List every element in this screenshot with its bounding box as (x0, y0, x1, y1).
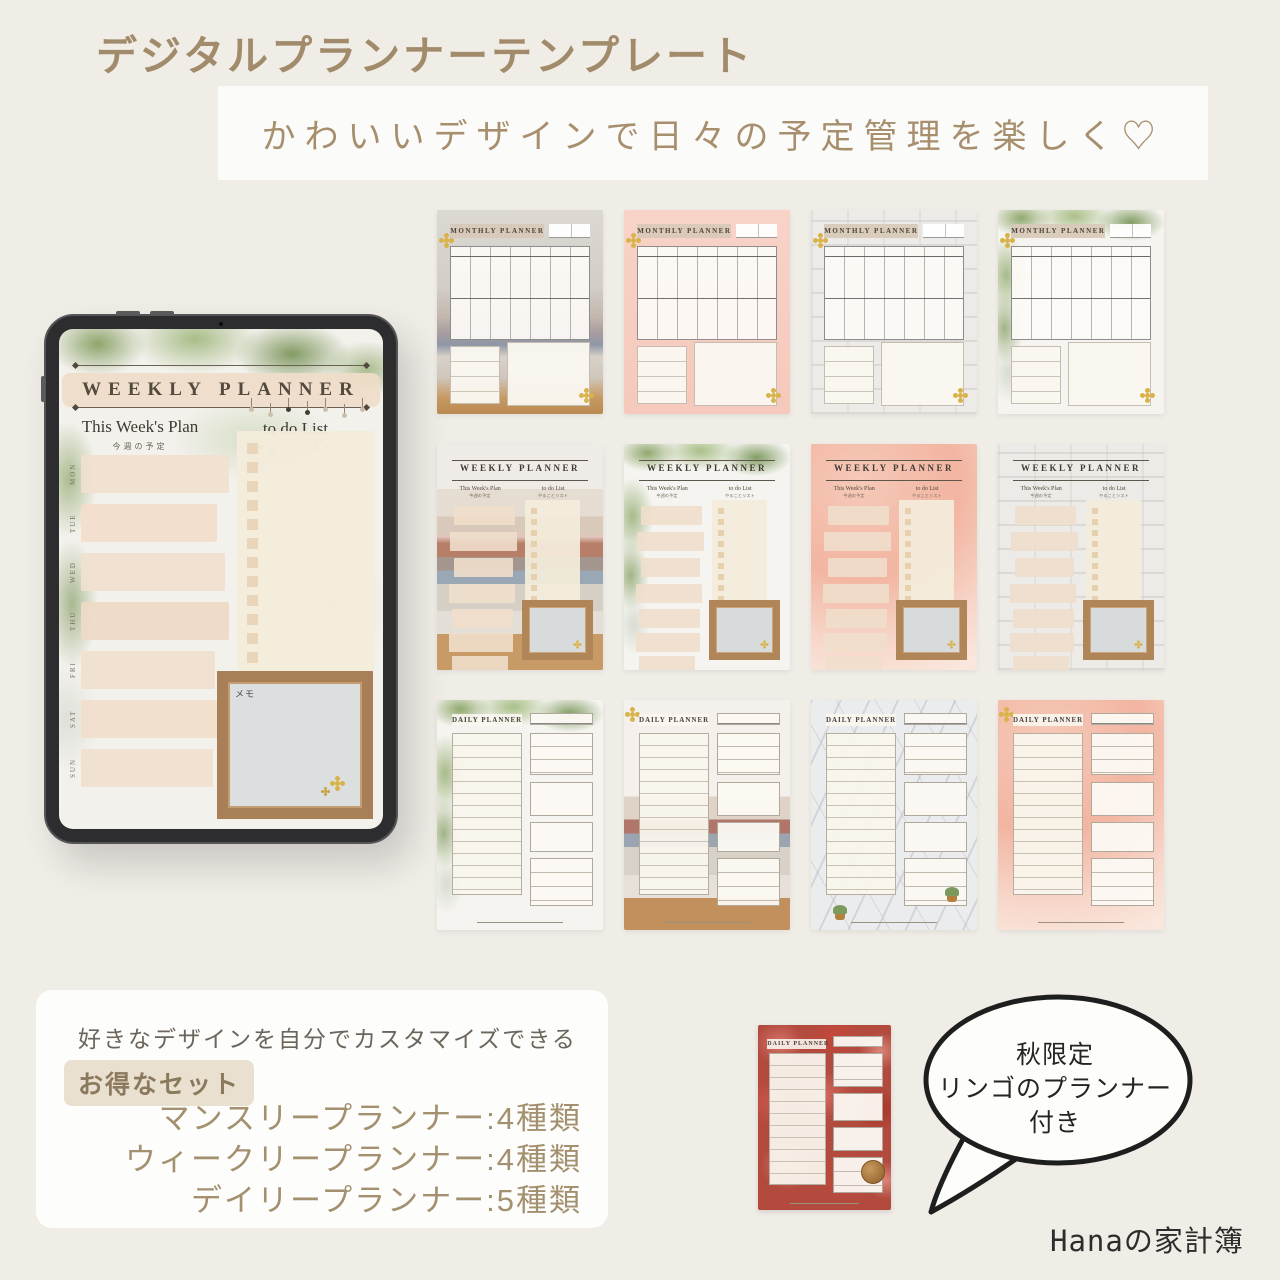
mini-title: DAILY PLANNER (452, 714, 522, 726)
day-entry-box (449, 584, 515, 603)
day-entry-box (636, 584, 702, 603)
day-entry-box (449, 633, 514, 652)
day-row: TUE (69, 504, 229, 542)
schedule-panel (452, 733, 522, 895)
day-entry-box (823, 633, 888, 652)
notes-box (824, 346, 874, 404)
todo-box (717, 733, 780, 775)
mini-todo-heading: to do Listやることリスト (897, 486, 957, 499)
memo-box (833, 1127, 884, 1151)
day-entry-box (826, 609, 887, 628)
tablet-power-button (41, 376, 45, 402)
set-item-daily: デイリープランナー:5種類 (125, 1180, 582, 1221)
notes-box (1011, 346, 1061, 404)
planner-thumbnail-weekly-2: WEEKLY PLANNER This Week's Plan今週の予定 to … (624, 444, 790, 670)
notes-box (530, 858, 593, 906)
promo-banner: かわいいデザインで日々の予定管理を楽しく♡ (218, 86, 1208, 180)
planner-thumbnail-daily-4: DAILY PLANNER (998, 700, 1164, 930)
tablet-volume-button (150, 311, 174, 315)
mini-title: DAILY PLANNER (639, 714, 709, 726)
flower-icon (444, 238, 449, 243)
mini-title: WEEKLY PLANNER (624, 463, 790, 473)
todo-box (1091, 733, 1154, 775)
mini-todo-heading: to do Listやることリスト (1084, 486, 1144, 499)
flower-icon (1005, 238, 1010, 243)
day-entry-box (826, 656, 882, 670)
notes-box (1068, 342, 1151, 406)
week-day-rows: MON TUE WED THU FRI SAT SUN (69, 455, 229, 787)
brand-credit: Hanaの家計簿 (1050, 1218, 1244, 1260)
memo-box (530, 822, 593, 852)
apple-planner-thumbnail: DAILY PLANNER (758, 1025, 891, 1210)
flower-icon (1004, 712, 1009, 717)
planner-thumbnail-weekly-1: WEEKLY PLANNER This Week's Plan今週の予定 to … (437, 444, 603, 670)
planner-thumbnail-daily-3: DAILY PLANNER (811, 700, 977, 930)
bubble-line-2: リンゴのプランナー付き (930, 1072, 1180, 1140)
day-entry-box (1013, 656, 1069, 670)
day-entry-box (641, 506, 702, 525)
flower-icon (631, 238, 636, 243)
day-entry-box (81, 455, 229, 493)
set-item-monthly: マンスリープランナー:4種類 (125, 1098, 582, 1139)
mini-week-plan-heading: This Week's Plan今週の予定 (819, 486, 889, 499)
mini-week-plan-heading: This Week's Plan今週の予定 (632, 486, 702, 499)
day-row: THU (69, 602, 229, 640)
mini-week-plan-heading: This Week's Plan今週の予定 (1006, 486, 1076, 499)
mini-title: WEEKLY PLANNER (811, 463, 977, 473)
mini-title: WEEKLY PLANNER (437, 463, 603, 473)
flower-icon (630, 712, 635, 717)
notes-box (1091, 858, 1154, 906)
footer-line (851, 922, 937, 923)
info-box: 好きなデザインを自分でカスタマイズできる お得なセット マンスリープランナー:4… (36, 990, 608, 1228)
day-entry-box (637, 532, 703, 551)
day-entry-box (641, 558, 701, 577)
planner-thumbnail-monthly-1: MONTHLY PLANNER (437, 210, 603, 414)
mini-todo-heading: to do Listやることリスト (710, 486, 770, 499)
tablet-mockup: WEEKLY PLANNER This Week's Plan 今週の予定 to… (44, 314, 398, 844)
day-entry-box (454, 558, 514, 577)
tablet-volume-button (116, 311, 140, 315)
mini-date-box (923, 224, 963, 238)
priority-box (833, 1093, 884, 1121)
day-label: SUN (69, 749, 81, 787)
mini-title: DAILY PLANNER (767, 1039, 826, 1049)
mini-title: MONTHLY PLANNER (637, 224, 731, 238)
day-entry-box (1015, 506, 1076, 525)
planner-grid: MONTHLY PLANNER MONTHLY PLANNER MONTHLY … (437, 210, 1164, 930)
plant-pot-icon (835, 914, 845, 920)
notes-box (694, 342, 777, 406)
flower-icon (771, 393, 776, 398)
day-entry-box (81, 504, 217, 542)
bubble-line-1: 秋限定 (930, 1038, 1180, 1072)
week-plan-heading: This Week's Plan 今週の予定 (59, 417, 221, 452)
day-entry-box (450, 532, 516, 551)
memo-frame (709, 600, 780, 660)
planner-thumbnail-monthly-4: MONTHLY PLANNER (998, 210, 1164, 414)
day-entry-box (636, 633, 701, 652)
flower-icon (335, 781, 340, 786)
mini-title: MONTHLY PLANNER (1011, 224, 1105, 238)
schedule-panel (769, 1053, 826, 1185)
set-item-weekly: ウィークリープランナー:4種類 (125, 1139, 582, 1180)
mini-date-box (1091, 713, 1154, 725)
day-entry-box (1015, 558, 1075, 577)
todo-checkboxes (247, 443, 258, 663)
calendar-grid (450, 246, 589, 340)
day-entry-box (828, 558, 888, 577)
day-label: THU (69, 602, 81, 640)
plant-pot-icon (947, 896, 957, 902)
flower-icon (763, 643, 766, 646)
memo-box (1091, 822, 1154, 852)
flower-icon (1145, 393, 1150, 398)
calendar-grid (1011, 246, 1150, 340)
day-entry-box (1013, 609, 1074, 628)
notes-box (904, 858, 967, 906)
memo-frame (896, 600, 967, 660)
mini-date-box (717, 713, 780, 725)
schedule-panel (639, 733, 709, 895)
mini-date-box (1110, 224, 1150, 238)
mini-title: MONTHLY PLANNER (824, 224, 918, 238)
footer-line (1038, 922, 1124, 923)
footer-line (664, 922, 750, 923)
planner-thumbnail-weekly-4: WEEKLY PLANNER This Week's Plan今週の予定 to … (998, 444, 1164, 670)
planner-thumbnail-daily-2: DAILY PLANNER (624, 700, 790, 930)
mini-date-box (549, 224, 589, 238)
day-label: TUE (69, 504, 81, 542)
mini-date-box (833, 1036, 884, 1047)
todo-box (904, 733, 967, 775)
flower-icon (584, 393, 589, 398)
page-title: デジタルプランナーテンプレート (96, 22, 754, 82)
day-entry-box (81, 651, 215, 689)
day-entry-box (1010, 584, 1076, 603)
notes-box (507, 342, 590, 406)
mini-title: WEEKLY PLANNER (998, 463, 1164, 473)
priority-box (1091, 782, 1154, 816)
day-entry-box (81, 749, 213, 787)
flower-icon (324, 790, 327, 793)
day-entry-box (639, 656, 695, 670)
mini-date-box (736, 224, 776, 238)
day-entry-box (1010, 633, 1075, 652)
week-plan-heading-en: This Week's Plan (59, 417, 221, 437)
day-entry-box (454, 506, 515, 525)
customize-note: 好きなデザインを自分でカスタマイズできる (78, 1020, 577, 1054)
flower-icon (950, 643, 953, 646)
planner-thumbnail-weekly-3: WEEKLY PLANNER This Week's Plan今週の予定 to … (811, 444, 977, 670)
mini-title: MONTHLY PLANNER (450, 224, 544, 238)
footer-line (790, 1203, 859, 1204)
footer-line (477, 922, 563, 923)
hanging-dots-decoration (249, 407, 365, 418)
day-entry-box (452, 656, 508, 670)
schedule-panel (1013, 733, 1083, 895)
memo-frame (522, 600, 593, 660)
day-entry-box (828, 506, 889, 525)
todo-box (833, 1053, 884, 1087)
day-row: SAT (69, 700, 229, 738)
flower-icon (818, 238, 823, 243)
todo-box (530, 733, 593, 775)
day-entry-box (824, 532, 890, 551)
week-plan-heading-jp: 今週の予定 (59, 441, 221, 452)
planner-thumbnail-daily-1: DAILY PLANNER (437, 700, 603, 930)
memo-board: メモ (217, 671, 373, 819)
planner-thumbnail-monthly-2: MONTHLY PLANNER (624, 210, 790, 414)
day-row: MON (69, 455, 229, 493)
day-entry-box (81, 602, 229, 640)
day-label: SAT (69, 700, 81, 738)
set-list: マンスリープランナー:4種類 ウィークリープランナー:4種類 デイリープランナー… (125, 1098, 582, 1221)
mini-date-box (904, 713, 967, 725)
calendar-grid (637, 246, 776, 340)
notes-box (717, 858, 780, 906)
ornament-rule (75, 365, 367, 366)
day-entry-box (81, 700, 223, 738)
day-entry-box (823, 584, 889, 603)
priority-box (904, 782, 967, 816)
day-label: WED (69, 553, 81, 591)
flower-icon (1137, 643, 1140, 646)
notes-box (637, 346, 687, 404)
day-row: FRI (69, 651, 229, 689)
day-label: MON (69, 455, 81, 493)
mini-title: DAILY PLANNER (1013, 714, 1083, 726)
tablet-screen: WEEKLY PLANNER This Week's Plan 今週の予定 to… (59, 329, 383, 829)
mini-date-box (530, 713, 593, 725)
memo-frame (1083, 600, 1154, 660)
notes-box (881, 342, 964, 406)
calendar-grid (824, 246, 963, 340)
bubble-text: 秋限定 リンゴのプランナー付き (930, 1038, 1180, 1140)
day-row: WED (69, 553, 229, 591)
day-entry-box (81, 553, 225, 591)
day-entry-box (452, 609, 513, 628)
memo-box (904, 822, 967, 852)
day-entry-box (639, 609, 700, 628)
mini-todo-heading: to do Listやることリスト (523, 486, 583, 499)
tablet-camera-dot (219, 322, 223, 326)
memo-box (717, 822, 780, 852)
weekly-planner-title: WEEKLY PLANNER (62, 373, 380, 407)
day-label: FRI (69, 651, 81, 689)
priority-box (530, 782, 593, 816)
plant-icon (833, 905, 847, 914)
flower-icon (958, 393, 963, 398)
mini-week-plan-heading: This Week's Plan今週の予定 (445, 486, 515, 499)
mini-title: DAILY PLANNER (826, 714, 896, 726)
schedule-panel (826, 733, 896, 895)
notes-box (450, 346, 500, 404)
apple-pie-icon (861, 1160, 885, 1184)
todo-panel (237, 431, 375, 671)
promo-banner-text: かわいいデザインで日々の予定管理を楽しく♡ (262, 109, 1165, 158)
plant-icon (945, 887, 959, 896)
day-row: SUN (69, 749, 229, 787)
flower-icon (576, 643, 579, 646)
memo-label: メモ (235, 687, 255, 700)
day-entry-box (1011, 532, 1077, 551)
planner-thumbnail-monthly-3: MONTHLY PLANNER (811, 210, 977, 414)
priority-box (717, 782, 780, 816)
